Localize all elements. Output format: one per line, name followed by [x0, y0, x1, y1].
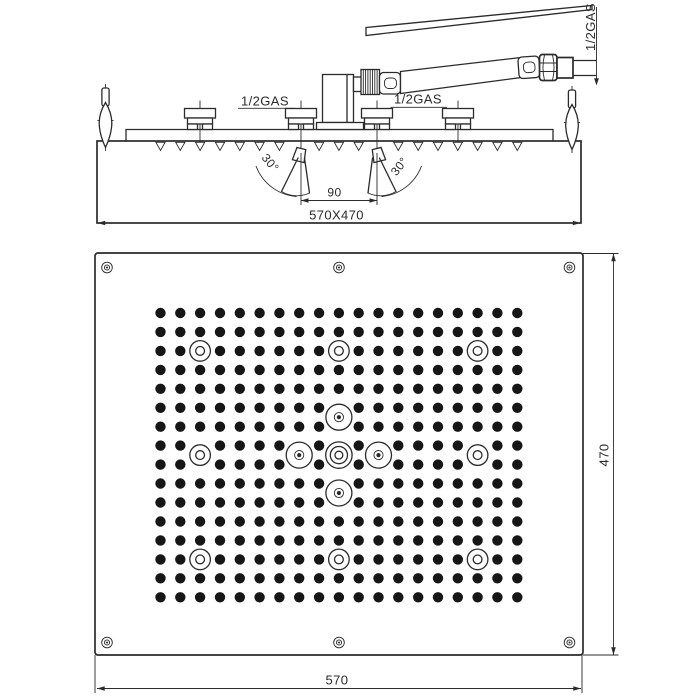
- nozzle-dot: [294, 478, 304, 488]
- nozzle-dot: [195, 573, 205, 583]
- nozzle-dot: [512, 573, 522, 583]
- nozzle-dot: [373, 346, 383, 356]
- width-label: 570: [326, 673, 349, 688]
- nozzle-dot: [314, 422, 324, 432]
- nozzle-dot: [393, 459, 403, 469]
- nozzle-dot: [235, 554, 245, 564]
- nozzle-dot: [413, 478, 423, 488]
- nozzle-dot: [294, 516, 304, 526]
- nozzle-dot: [373, 573, 383, 583]
- nozzle-dot: [215, 308, 225, 318]
- nozzle-dot: [175, 592, 185, 602]
- nozzle-dot: [215, 592, 225, 602]
- nozzle-dot: [393, 308, 403, 318]
- nozzle-dot: [492, 440, 502, 450]
- nozzle-dot: [175, 440, 185, 450]
- nozzle-dot: [433, 554, 443, 564]
- overall-size-label: 570X470: [309, 208, 364, 223]
- nozzle-dot: [235, 573, 245, 583]
- nozzle-dot: [492, 346, 502, 356]
- nozzle-dot: [354, 403, 364, 413]
- nozzle-dot: [354, 384, 364, 394]
- nozzle-dot: [155, 327, 165, 337]
- nozzle-dot: [413, 554, 423, 564]
- nozzle-dot: [274, 365, 284, 375]
- nozzle-dot: [294, 422, 304, 432]
- nozzle-dot: [373, 478, 383, 488]
- nozzle-dot: [453, 478, 463, 488]
- nozzle-dot: [155, 384, 165, 394]
- nozzle-dot: [215, 478, 225, 488]
- nozzle-dot: [175, 459, 185, 469]
- nozzle-dot: [433, 478, 443, 488]
- corner-screw: [564, 637, 575, 648]
- nozzle-dot: [492, 327, 502, 337]
- nozzle-dot: [195, 384, 205, 394]
- nozzle-dot: [155, 440, 165, 450]
- nozzle-dot: [274, 573, 284, 583]
- nozzle-dot: [334, 516, 344, 526]
- nozzle-dot: [175, 327, 185, 337]
- nozzle-dot: [274, 497, 284, 507]
- nozzle-dot: [512, 592, 522, 602]
- nozzle-dot: [274, 308, 284, 318]
- width-dimension: 570: [95, 655, 582, 693]
- nozzle-dot: [294, 365, 304, 375]
- nozzle-dot: [354, 554, 364, 564]
- nozzle-dot: [314, 346, 324, 356]
- nozzle-dot: [512, 535, 522, 545]
- nozzle-dot: [512, 403, 522, 413]
- nozzle-dot: [393, 440, 403, 450]
- top-plate: [126, 130, 553, 142]
- gas-inlet-left-label: 1/2GAS: [241, 94, 289, 109]
- nozzle-dot: [254, 440, 264, 450]
- nozzle-dot: [294, 403, 304, 413]
- nozzle-dot: [492, 497, 502, 507]
- open-ring-nozzle: [190, 445, 211, 466]
- nozzle-dot: [175, 573, 185, 583]
- nozzle-dot: [235, 308, 245, 318]
- nozzle-dot: [254, 308, 264, 318]
- nozzle-dot: [314, 308, 324, 318]
- nozzle-dot: [235, 327, 245, 337]
- nozzle-dot: [314, 497, 324, 507]
- nozzle-dot: [294, 535, 304, 545]
- nozzle-dot: [393, 516, 403, 526]
- nozzle-dot: [354, 440, 364, 450]
- nozzle-dot: [274, 478, 284, 488]
- nozzle-dot: [492, 384, 502, 394]
- nozzle-dot: [413, 573, 423, 583]
- nozzle-dot: [453, 535, 463, 545]
- nozzle-dot: [314, 403, 324, 413]
- nozzle-dot: [334, 535, 344, 545]
- nozzle-dot: [492, 478, 502, 488]
- bottom-view: 470 570: [95, 253, 619, 693]
- nozzle-dot: [393, 554, 403, 564]
- nozzle-dot: [314, 327, 324, 337]
- nozzle-dot: [433, 535, 443, 545]
- nozzle-dot: [274, 346, 284, 356]
- nozzle-dot: [433, 346, 443, 356]
- nozzle-dot: [235, 422, 245, 432]
- nozzle-dot: [433, 365, 443, 375]
- nozzle-dot: [492, 554, 502, 564]
- nozzle-dot: [155, 554, 165, 564]
- nozzle-dot: [492, 573, 502, 583]
- nozzle-dot: [155, 422, 165, 432]
- nozzle-dot: [235, 403, 245, 413]
- nozzle-dot: [512, 440, 522, 450]
- nozzle-dot: [254, 346, 264, 356]
- nozzle-dot: [294, 573, 304, 583]
- nozzle-dot: [393, 535, 403, 545]
- nozzle-dot: [334, 308, 344, 318]
- nozzle-dot: [235, 497, 245, 507]
- nozzle-dot: [393, 592, 403, 602]
- nozzle-dot: [175, 422, 185, 432]
- nozzle-dot: [215, 422, 225, 432]
- nozzle-dot: [254, 535, 264, 545]
- open-ring-nozzle: [467, 549, 488, 570]
- nozzle-dot: [472, 592, 482, 602]
- nozzle-dot: [373, 497, 383, 507]
- nozzle-dot: [433, 459, 443, 469]
- nozzle-dot: [433, 573, 443, 583]
- nozzle-dot: [472, 497, 482, 507]
- nozzle-dot: [334, 573, 344, 583]
- gas-leader-arrow: [594, 78, 599, 85]
- nozzle-dot: [373, 516, 383, 526]
- nozzle-dot: [433, 422, 443, 432]
- nozzle-dot: [354, 535, 364, 545]
- nozzle-dot: [314, 440, 324, 450]
- nozzle-dot: [512, 554, 522, 564]
- nozzle-dot: [274, 327, 284, 337]
- nozzle-dot: [294, 384, 304, 394]
- nozzle-dot: [195, 422, 205, 432]
- nozzle-dot: [492, 403, 502, 413]
- nozzle-dot: [215, 554, 225, 564]
- nozzle-dot: [175, 478, 185, 488]
- nozzle-dot: [175, 365, 185, 375]
- height-dimension: 470: [583, 254, 619, 656]
- nozzle-dot: [472, 573, 482, 583]
- nozzle-dot: [254, 497, 264, 507]
- nozzle-dot: [274, 459, 284, 469]
- nozzle-dot: [354, 327, 364, 337]
- union-nut: [540, 55, 558, 81]
- nozzle-dot: [314, 592, 324, 602]
- nozzle-dot: [472, 308, 482, 318]
- nozzle-dot: [512, 459, 522, 469]
- nozzle-dot: [254, 422, 264, 432]
- end-cylinder: [557, 58, 573, 79]
- nozzle-dot: [354, 516, 364, 526]
- nozzle-dot: [235, 384, 245, 394]
- nozzle-dot: [354, 365, 364, 375]
- nozzle-dot: [235, 459, 245, 469]
- nozzle-dot: [254, 327, 264, 337]
- nozzle-dot: [334, 384, 344, 394]
- nozzle-dot: [413, 592, 423, 602]
- nozzle-dot: [472, 422, 482, 432]
- nozzle-dot: [235, 346, 245, 356]
- ring-dot-nozzle: [326, 404, 352, 430]
- nozzle-dot: [195, 516, 205, 526]
- nozzle-dot: [254, 554, 264, 564]
- nozzle-dot: [294, 592, 304, 602]
- nozzle-dot: [155, 365, 165, 375]
- nozzle-dot: [175, 346, 185, 356]
- nozzle-dot: [433, 497, 443, 507]
- nozzle-dot: [373, 327, 383, 337]
- nozzle-dot: [254, 459, 264, 469]
- corner-screw: [102, 262, 113, 273]
- arm-link-right: [518, 56, 540, 79]
- nozzle-dot: [215, 365, 225, 375]
- nozzle-dot: [472, 478, 482, 488]
- nozzle-dot: [314, 573, 324, 583]
- nozzle-dot: [155, 308, 165, 318]
- nozzle-dot: [472, 403, 482, 413]
- open-ring-nozzle: [190, 549, 211, 570]
- corner-screw: [564, 262, 575, 273]
- nozzle-dot: [354, 592, 364, 602]
- nozzle-dot: [413, 422, 423, 432]
- nozzle-dot: [195, 308, 205, 318]
- nozzle-dot: [274, 554, 284, 564]
- nozzle-dot: [155, 497, 165, 507]
- nozzle-dot: [235, 592, 245, 602]
- nozzle-dot: [254, 516, 264, 526]
- nozzle-dot: [274, 384, 284, 394]
- nozzle-dot: [215, 346, 225, 356]
- nozzle-dot: [215, 403, 225, 413]
- nozzle-dot: [453, 516, 463, 526]
- nozzle-dot: [314, 535, 324, 545]
- nozzle-dot: [393, 478, 403, 488]
- nozzle-dot: [373, 554, 383, 564]
- nozzle-dot: [175, 403, 185, 413]
- nozzle-dot: [492, 422, 502, 432]
- nozzle-dot: [175, 384, 185, 394]
- nozzle-dot: [175, 497, 185, 507]
- arm-bar: [401, 58, 522, 94]
- nozzle-spacing-label: 90: [327, 186, 341, 200]
- arm-assembly: [361, 55, 596, 95]
- nozzle-dot: [254, 573, 264, 583]
- open-ring-nozzle: [467, 445, 488, 466]
- nozzle-dot: [254, 403, 264, 413]
- nozzle-dot: [433, 308, 443, 318]
- nozzle-dot: [373, 384, 383, 394]
- arm-raised-rod: [366, 6, 592, 36]
- side-view: 1/2GAS: [97, 3, 599, 225]
- nozzle-dot: [314, 478, 324, 488]
- nozzle-dot: [453, 403, 463, 413]
- nozzle-dot: [155, 346, 165, 356]
- nozzle-dot: [215, 459, 225, 469]
- nozzle-dot: [413, 365, 423, 375]
- nozzle-dot: [453, 327, 463, 337]
- nozzle-dot: [334, 592, 344, 602]
- nozzle-dot: [453, 422, 463, 432]
- nozzle-dot: [413, 459, 423, 469]
- gas-arm-label: 1/2GAS: [583, 3, 598, 51]
- nozzle-dot: [433, 516, 443, 526]
- nozzle-dot: [413, 384, 423, 394]
- nozzle-dot: [215, 516, 225, 526]
- nozzle-dot: [294, 497, 304, 507]
- nozzle-dot: [314, 516, 324, 526]
- nozzle-dot: [413, 308, 423, 318]
- nozzle-dot: [512, 308, 522, 318]
- nozzle-dot: [433, 440, 443, 450]
- nozzle-dot: [235, 516, 245, 526]
- ring-dot-nozzle: [366, 442, 392, 468]
- nozzle-dot: [155, 459, 165, 469]
- nozzle-dot: [354, 497, 364, 507]
- nozzle-dot: [235, 365, 245, 375]
- nozzle-dot: [393, 573, 403, 583]
- nozzle-dot: [393, 365, 403, 375]
- nozzle-dot: [195, 478, 205, 488]
- nozzle-dot: [334, 365, 344, 375]
- nozzle-dot: [294, 308, 304, 318]
- nozzle-dot: [155, 403, 165, 413]
- nozzle-dot: [373, 592, 383, 602]
- nozzle-dot: [354, 308, 364, 318]
- nozzle-dot: [373, 308, 383, 318]
- nozzle-dot: [215, 327, 225, 337]
- nozzle-dot: [433, 384, 443, 394]
- nozzle-dot: [393, 327, 403, 337]
- nozzle-dot: [155, 535, 165, 545]
- nozzle-dot: [413, 440, 423, 450]
- nozzle-dot: [354, 346, 364, 356]
- nozzle-dot: [393, 422, 403, 432]
- nozzle-dot: [215, 497, 225, 507]
- nozzle-dot: [155, 573, 165, 583]
- nozzle-dot: [512, 516, 522, 526]
- nozzle-dot: [314, 384, 324, 394]
- nozzle-dot: [472, 384, 482, 394]
- ring-dot-nozzle: [326, 480, 352, 506]
- nozzle-dot: [274, 403, 284, 413]
- nozzle-dot: [453, 384, 463, 394]
- nozzle-dot: [492, 535, 502, 545]
- nozzle-dot: [195, 592, 205, 602]
- nozzle-dot: [274, 440, 284, 450]
- nozzle-dot: [195, 403, 205, 413]
- nozzle-dot: [512, 384, 522, 394]
- gas-inlet-right-label: 1/2GAS: [394, 92, 442, 107]
- nozzle-dot: [453, 346, 463, 356]
- ring-dot-nozzle: [286, 442, 312, 468]
- nozzle-dot: [472, 535, 482, 545]
- nozzle-dot: [274, 516, 284, 526]
- open-ring-nozzle: [467, 341, 488, 362]
- nozzle-dot: [492, 365, 502, 375]
- nozzle-dot: [175, 308, 185, 318]
- nozzle-dot: [274, 422, 284, 432]
- nozzle-dot: [354, 459, 364, 469]
- center-nozzle: [326, 442, 352, 468]
- nozzle-dot: [433, 327, 443, 337]
- nozzle-dot: [453, 554, 463, 564]
- shower-head-technical-drawing: 1/2GAS: [0, 0, 700, 700]
- nozzle-dot: [433, 592, 443, 602]
- nozzle-dot: [453, 573, 463, 583]
- knurl-hatch: [363, 70, 377, 94]
- nozzle-dot: [354, 573, 364, 583]
- nozzle-dot: [413, 346, 423, 356]
- nozzle-dot: [274, 592, 284, 602]
- nozzle-dot: [512, 365, 522, 375]
- nozzle-dot: [354, 478, 364, 488]
- nozzle-dot: [294, 327, 304, 337]
- nozzle-dot: [373, 535, 383, 545]
- nozzle-dot: [393, 403, 403, 413]
- nozzle-dot: [215, 535, 225, 545]
- nozzle-dot: [195, 497, 205, 507]
- nozzle-dot: [453, 497, 463, 507]
- nozzle-grid: [155, 308, 522, 603]
- nozzle-dot: [512, 346, 522, 356]
- nozzle-dot: [512, 497, 522, 507]
- nozzle-dot: [492, 459, 502, 469]
- nozzle-dot: [175, 554, 185, 564]
- nozzle-dot: [314, 554, 324, 564]
- nozzle-dot: [393, 497, 403, 507]
- nozzle-dot: [413, 403, 423, 413]
- nozzle-dot: [294, 346, 304, 356]
- nozzle-dot: [453, 592, 463, 602]
- nozzle-dot: [215, 573, 225, 583]
- nozzle-dot: [512, 478, 522, 488]
- nozzle-dot: [512, 422, 522, 432]
- nozzle-dot: [195, 535, 205, 545]
- nozzle-dot: [195, 327, 205, 337]
- nozzle-dot: [314, 365, 324, 375]
- open-ring-nozzle: [190, 341, 211, 362]
- nozzle-dot: [195, 365, 205, 375]
- nozzle-dot: [492, 592, 502, 602]
- corner-screw: [334, 262, 345, 273]
- nozzle-dot: [472, 327, 482, 337]
- nozzle-dot: [512, 327, 522, 337]
- nozzle-dot: [453, 365, 463, 375]
- nozzle-dot: [274, 535, 284, 545]
- nozzle-dot: [175, 535, 185, 545]
- nozzle-dot: [254, 478, 264, 488]
- nozzle-dot: [453, 459, 463, 469]
- nozzle-dot: [235, 440, 245, 450]
- nozzle-dot: [492, 308, 502, 318]
- nozzle-dot: [373, 403, 383, 413]
- nozzle-dot: [453, 440, 463, 450]
- open-ring-nozzle: [329, 341, 350, 362]
- corner-screw: [102, 637, 113, 648]
- pipe-stub: [573, 61, 596, 76]
- nozzle-dot: [155, 478, 165, 488]
- nozzle-dot: [393, 384, 403, 394]
- nozzle-dot: [413, 497, 423, 507]
- nozzle-dot: [433, 403, 443, 413]
- height-label: 470: [597, 444, 612, 467]
